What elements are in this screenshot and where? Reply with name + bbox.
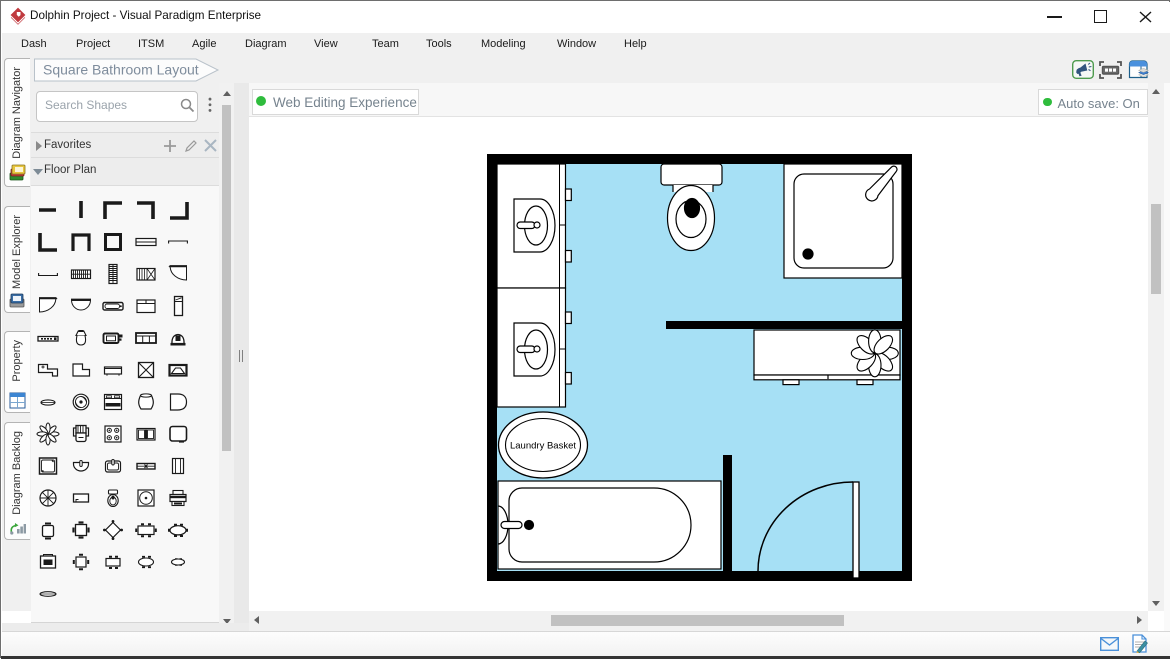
svg-text:Laundry Basket: Laundry Basket <box>510 441 576 452</box>
svg-text:Square Bathroom Layout: Square Bathroom Layout <box>43 62 199 78</box>
